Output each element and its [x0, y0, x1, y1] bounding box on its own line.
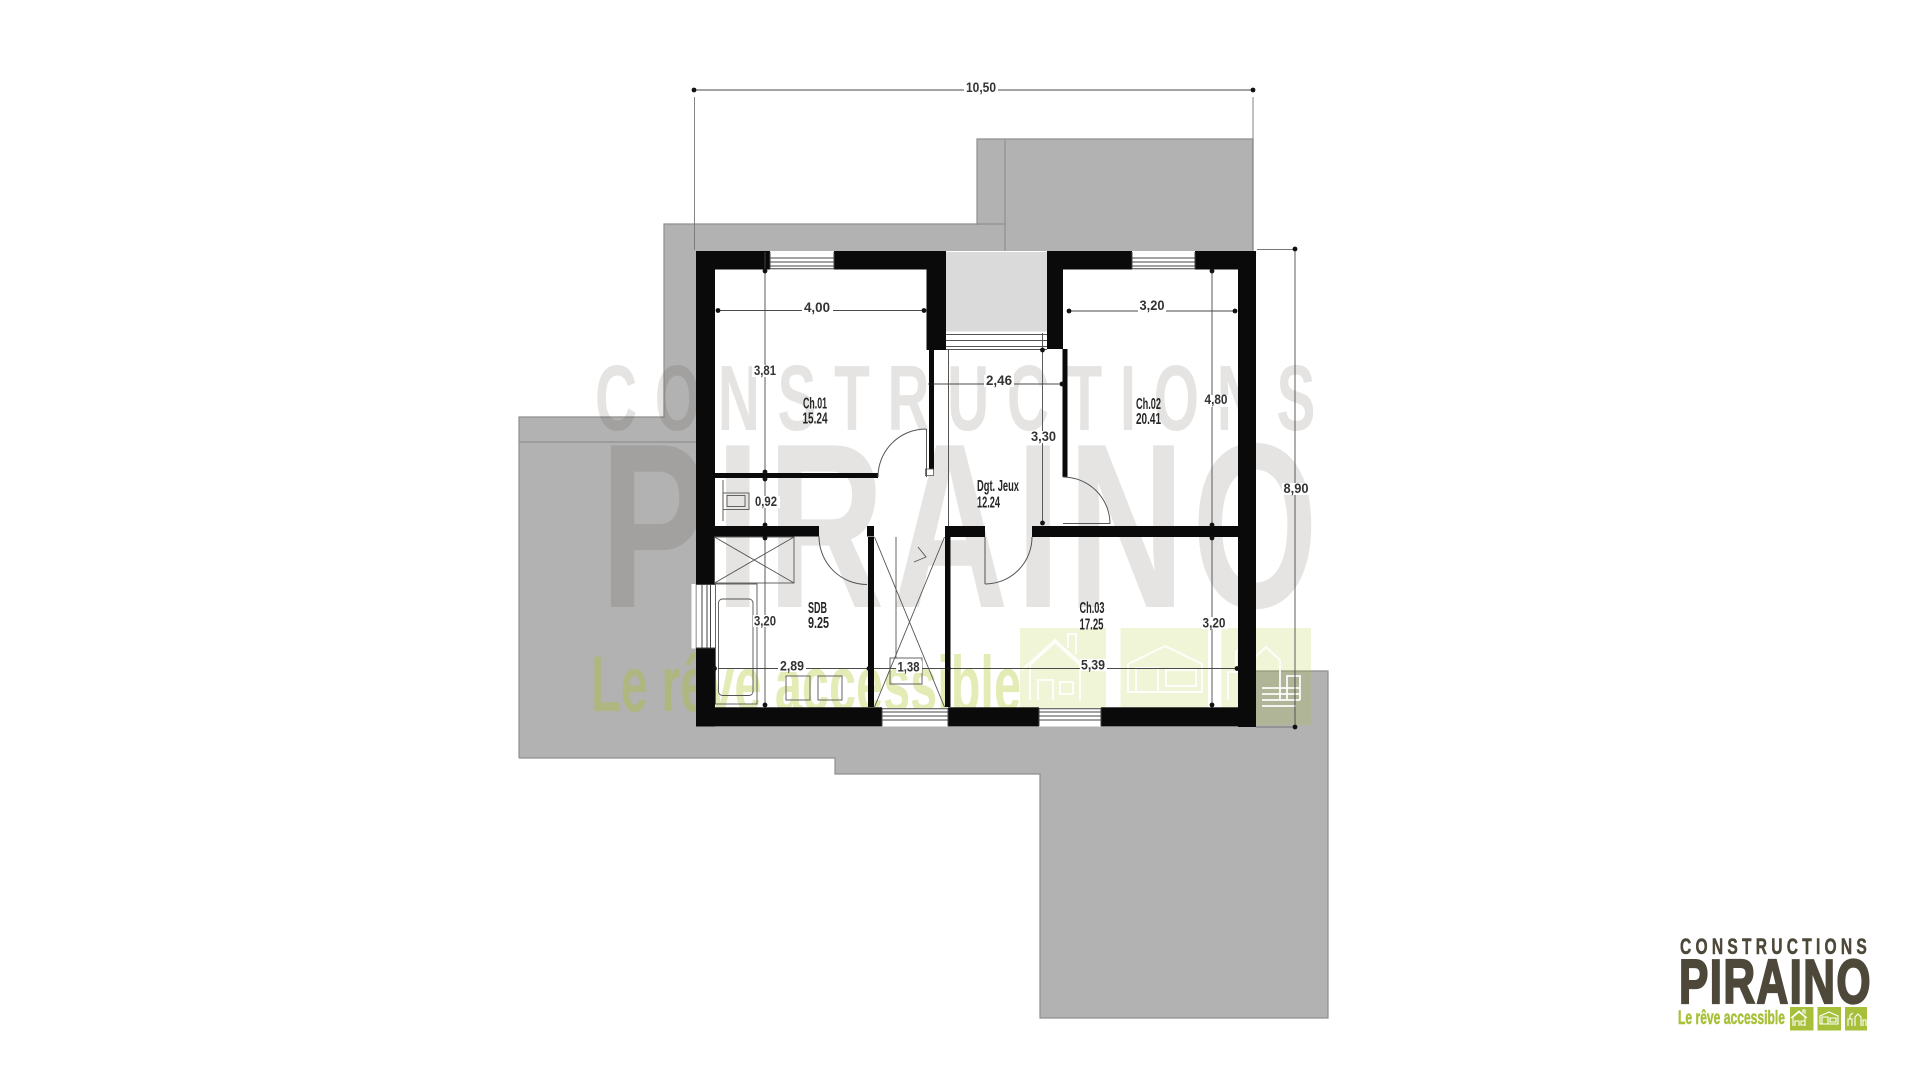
svg-text:3,20: 3,20: [1203, 616, 1226, 631]
svg-text:10,50: 10,50: [966, 80, 996, 95]
svg-text:3,20: 3,20: [1140, 298, 1165, 313]
svg-text:12.24: 12.24: [977, 495, 1000, 512]
svg-text:0,92: 0,92: [755, 494, 777, 509]
svg-text:2,89: 2,89: [780, 659, 804, 674]
svg-text:20.41: 20.41: [1136, 411, 1161, 428]
svg-text:5,39: 5,39: [1081, 658, 1105, 673]
svg-text:4,80: 4,80: [1205, 392, 1228, 407]
svg-text:9.25: 9.25: [808, 615, 829, 632]
svg-text:Dgt. Jeux: Dgt. Jeux: [977, 478, 1019, 495]
svg-text:3,81: 3,81: [754, 363, 776, 378]
svg-text:2,46: 2,46: [986, 373, 1012, 388]
svg-text:17.25: 17.25: [1080, 617, 1104, 634]
svg-text:Ch.03: Ch.03: [1080, 600, 1105, 617]
svg-text:15.24: 15.24: [803, 411, 828, 428]
svg-text:4,00: 4,00: [804, 300, 830, 315]
svg-text:1,38: 1,38: [898, 660, 920, 675]
svg-text:8,90: 8,90: [1284, 481, 1309, 496]
svg-text:Le rêve accessible: Le rêve accessible: [1678, 1007, 1785, 1029]
svg-text:3,20: 3,20: [754, 614, 776, 629]
svg-text:3,30: 3,30: [1031, 429, 1056, 444]
